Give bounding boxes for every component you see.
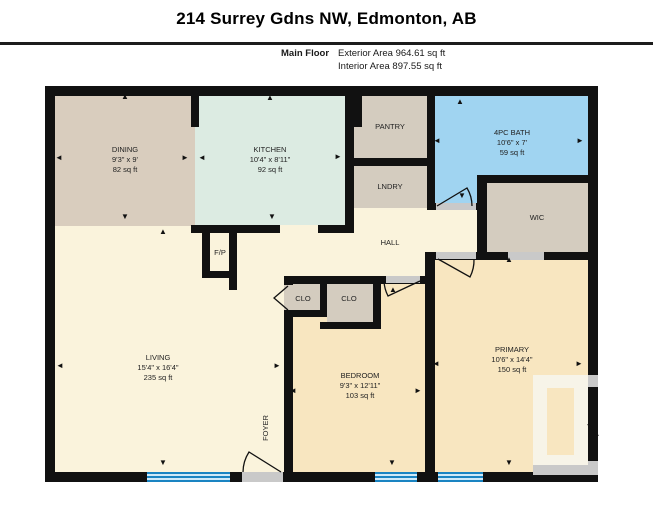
dimension-arrow-left: ◄ — [289, 387, 297, 395]
room-label-primary: PRIMARY10'6" x 14'4"150 sq ft — [491, 345, 532, 375]
balcony-inner — [547, 388, 574, 455]
room-label-dining: DINING9'3" x 9'82 sq ft — [112, 145, 138, 175]
dimension-arrow-left: ◄ — [56, 362, 64, 370]
dimension-arrow-left: ◄ — [198, 154, 206, 162]
room-label-living: LIVING15'4" x 16'4"235 sq ft — [137, 353, 178, 383]
wall-segment — [588, 86, 598, 482]
right-wall-opening — [588, 375, 598, 387]
window-primary — [438, 472, 483, 482]
door-opening-primary — [436, 252, 476, 259]
wall-segment — [45, 86, 55, 482]
balcony-edge — [533, 465, 598, 475]
room-label-wic: WIC — [530, 213, 545, 223]
floor-plan-page: 214 Surrey Gdns NW, Edmonton, AB Main Fl… — [0, 0, 653, 512]
wall-segment — [477, 175, 588, 183]
dimension-arrow-right: ► — [273, 362, 281, 370]
dimension-arrow-up: ▲ — [389, 286, 397, 294]
room-label-closet-2: CLO — [341, 294, 356, 304]
wall-segment — [427, 96, 435, 210]
room-label-laundry: LNDRY — [377, 182, 402, 192]
door-opening-wic — [508, 252, 544, 260]
window-bedroom — [375, 472, 417, 482]
dimension-arrow-left: ◄ — [432, 360, 440, 368]
dimension-arrow-down: ▼ — [159, 459, 167, 467]
wall-segment — [345, 158, 435, 166]
room-label-bath: 4PC BATH10'6" x 7'59 sq ft — [494, 128, 530, 158]
room-label-pantry: PANTRY — [375, 122, 405, 132]
dimension-arrow-down: ▼ — [458, 192, 466, 200]
room-label-bedroom: BEDROOM9'3" x 12'11"103 sq ft — [340, 371, 381, 401]
door-opening-bedroom — [386, 276, 420, 283]
wall-segment — [45, 472, 598, 482]
room-label-closet-1: CLO — [295, 294, 310, 304]
page-title: 214 Surrey Gdns NW, Edmonton, AB — [0, 9, 653, 29]
room-bath-lower — [435, 96, 477, 203]
wall-segment — [284, 276, 293, 285]
room-label-kitchen: KITCHEN10'4" x 8'11"92 sq ft — [250, 145, 291, 175]
door-opening-bath — [436, 203, 476, 210]
dimension-arrow-down: ▼ — [268, 213, 276, 221]
wall-segment — [191, 96, 199, 127]
wall-segment — [373, 276, 381, 329]
dimension-arrow-up: ▲ — [266, 94, 274, 102]
floor-meta: Main Floor Exterior Area 964.61 sq ft In… — [281, 48, 445, 72]
dimension-arrow-right: ► — [575, 360, 583, 368]
interior-area: Interior Area 897.55 sq ft — [338, 61, 445, 72]
dimension-arrow-up: ▲ — [121, 93, 129, 101]
dimension-arrow-right: ► — [576, 137, 584, 145]
dimension-arrow-up: ▲ — [159, 228, 167, 236]
window-living — [147, 472, 230, 482]
floor-label: Main Floor — [281, 48, 329, 72]
wall-segment — [320, 322, 381, 329]
front-door-opening — [242, 472, 283, 482]
dimension-arrow-down: ▼ — [505, 459, 513, 467]
dimension-arrow-left: ◄ — [55, 154, 63, 162]
dimension-arrow-up: ▲ — [456, 98, 464, 106]
dimension-arrow-down: ▼ — [121, 213, 129, 221]
exterior-area: Exterior Area 964.61 sq ft — [338, 48, 445, 59]
dimension-arrow-down: ▼ — [388, 459, 396, 467]
wall-segment — [477, 175, 487, 260]
wall-segment — [354, 96, 362, 127]
room-label-fireplace: F/P — [214, 248, 226, 258]
title-divider — [0, 42, 653, 45]
dimension-arrow-right: ► — [414, 387, 422, 395]
room-label-hall: HALL — [381, 238, 400, 248]
wall-segment — [427, 203, 436, 210]
dimension-arrow-up: ▲ — [505, 256, 513, 264]
dimension-arrow-right: ► — [334, 153, 342, 161]
dimension-arrow-right: ► — [181, 154, 189, 162]
dimension-arrow-left: ◄ — [433, 137, 441, 145]
wall-segment — [318, 225, 354, 233]
room-label-foyer: FOYER — [261, 415, 271, 441]
wall-segment — [191, 225, 280, 233]
wall-segment-fireplace — [229, 233, 237, 290]
